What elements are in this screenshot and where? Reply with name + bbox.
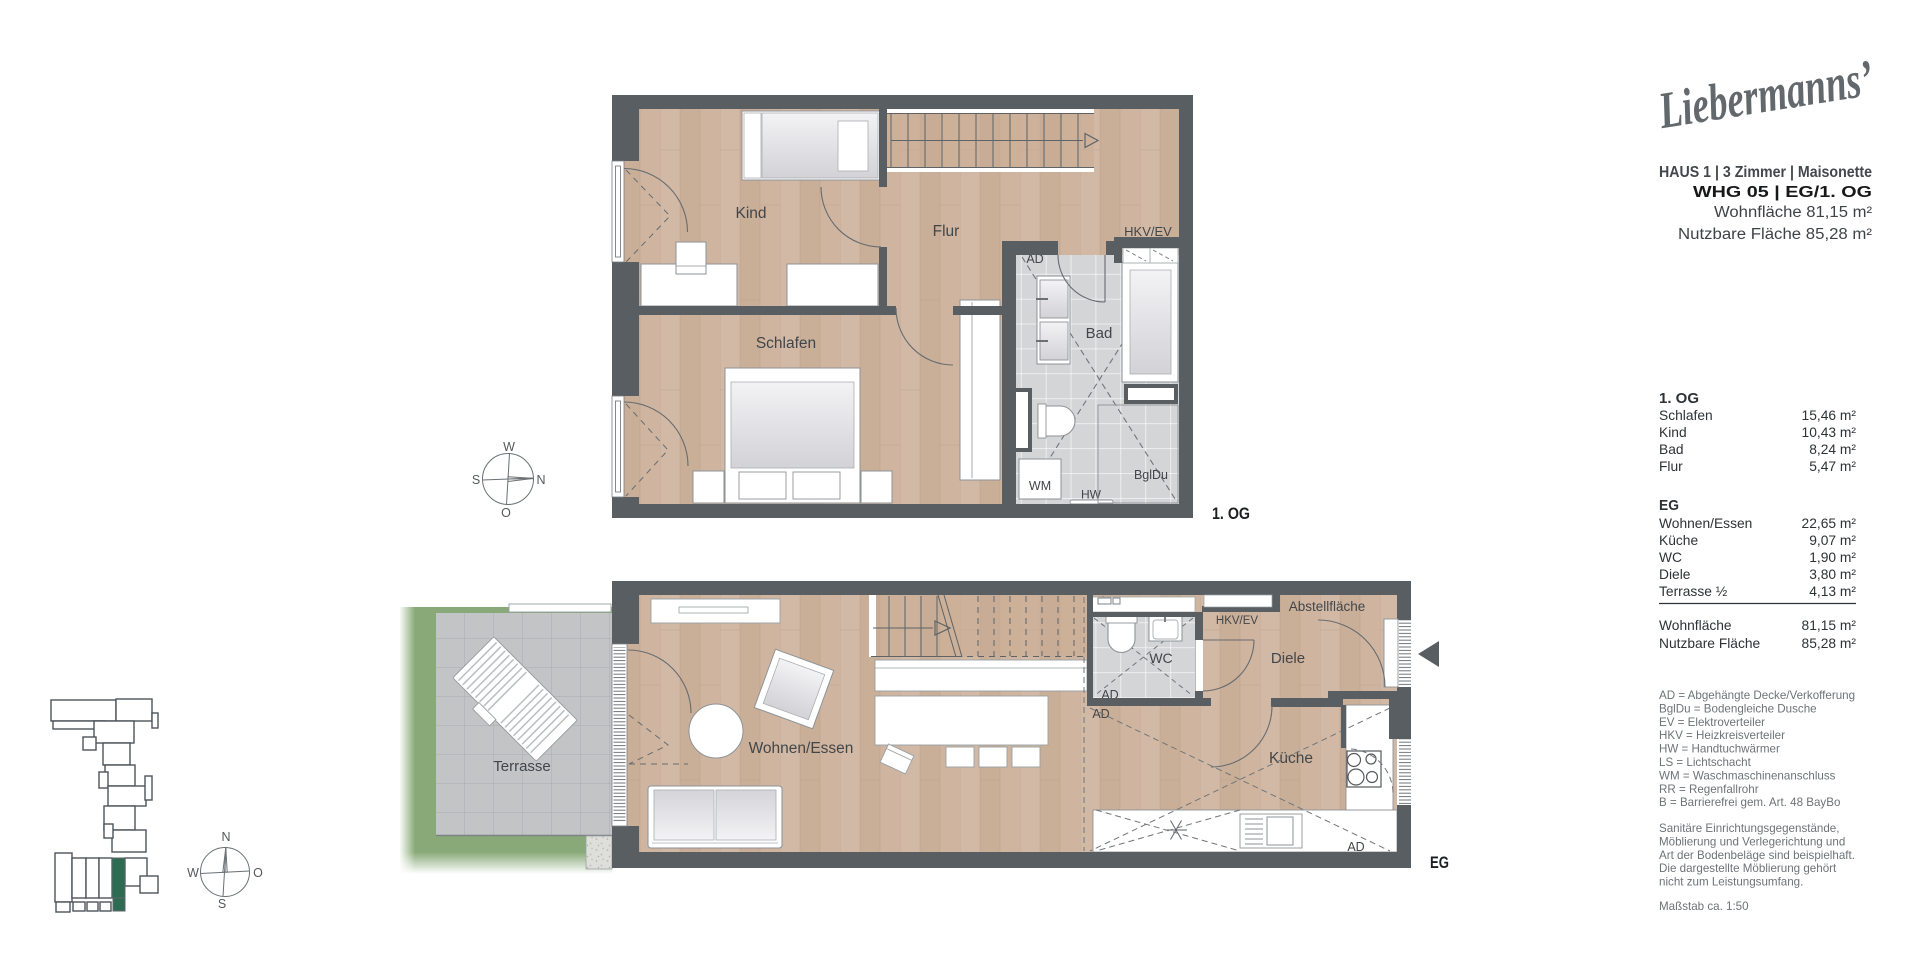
svg-text:Wohnfläche: Wohnfläche xyxy=(1659,618,1732,633)
svg-text:AD: AD xyxy=(1347,840,1364,854)
svg-text:HW: HW xyxy=(1081,488,1102,502)
svg-text:Flur: Flur xyxy=(933,223,960,240)
svg-text:WM = Waschmaschinenanschluss: WM = Waschmaschinenanschluss xyxy=(1659,769,1836,782)
svg-text:N: N xyxy=(221,830,230,844)
svg-text:Nutzbare Fläche: Nutzbare Fläche xyxy=(1659,636,1761,651)
svg-text:3,80 m²: 3,80 m² xyxy=(1809,567,1856,582)
svg-text:Abstellfläche: Abstellfläche xyxy=(1289,599,1366,614)
svg-text:Terrasse ½: Terrasse ½ xyxy=(1659,584,1728,599)
svg-text:Terrasse: Terrasse xyxy=(493,758,551,775)
svg-text:WM: WM xyxy=(1029,479,1051,493)
svg-text:Schlafen: Schlafen xyxy=(1659,408,1713,423)
svg-text:EG: EG xyxy=(1659,497,1679,514)
svg-text:Art der Bodenbeläge sind beisp: Art der Bodenbeläge sind beispielhaft. xyxy=(1659,849,1855,862)
svg-text:B = Barrierefrei gem. Art. 48: B = Barrierefrei gem. Art. 48 BayBo xyxy=(1659,796,1840,809)
svg-text:22,65 m²: 22,65 m² xyxy=(1802,516,1857,531)
svg-text:S: S xyxy=(218,897,226,911)
svg-text:1. OG: 1. OG xyxy=(1659,390,1699,407)
svg-text:AD: AD xyxy=(1092,707,1109,721)
svg-text:W: W xyxy=(503,440,515,454)
svg-text:Wohnfläche 81,15 m²: Wohnfläche 81,15 m² xyxy=(1714,204,1872,221)
svg-text:Wohnen/Essen: Wohnen/Essen xyxy=(749,740,854,757)
svg-text:HKV/EV: HKV/EV xyxy=(1216,615,1259,627)
svg-text:Sanitäre Einrichtungsgegenstän: Sanitäre Einrichtungsgegenstände, xyxy=(1659,822,1839,835)
svg-text:8,24 m²: 8,24 m² xyxy=(1809,442,1856,457)
svg-text:Küche: Küche xyxy=(1269,750,1313,767)
svg-text:HW = Handtuchwärmer: HW = Handtuchwärmer xyxy=(1659,743,1780,756)
svg-text:10,43 m²: 10,43 m² xyxy=(1802,425,1857,440)
svg-text:HKV = Heizkreisverteiler: HKV = Heizkreisverteiler xyxy=(1659,729,1785,742)
svg-text:Diele: Diele xyxy=(1659,567,1691,582)
svg-text:1,90 m²: 1,90 m² xyxy=(1809,550,1856,565)
svg-text:9,07 m²: 9,07 m² xyxy=(1809,533,1856,548)
svg-text:WC: WC xyxy=(1659,550,1682,565)
svg-text:W: W xyxy=(187,866,199,880)
svg-text:Flur: Flur xyxy=(1659,459,1683,474)
svg-text:nicht zum Leistungsumfang.: nicht zum Leistungsumfang. xyxy=(1659,876,1803,889)
svg-text:WHG 05 | EG/1. OG: WHG 05 | EG/1. OG xyxy=(1693,184,1872,201)
svg-text:Kind: Kind xyxy=(735,205,766,222)
svg-text:81,15 m²: 81,15 m² xyxy=(1802,618,1857,633)
svg-text:Diele: Diele xyxy=(1271,650,1305,667)
svg-text:Kind: Kind xyxy=(1659,425,1687,440)
svg-text:Möblierung und Verlegerichtung: Möblierung und Verlegerichtung und xyxy=(1659,835,1845,848)
svg-text:Bad: Bad xyxy=(1086,325,1113,342)
svg-text:1. OG: 1. OG xyxy=(1212,505,1250,523)
svg-text:4,13 m²: 4,13 m² xyxy=(1809,584,1856,599)
svg-text:85,28 m²: 85,28 m² xyxy=(1802,636,1857,651)
svg-text:Bad: Bad xyxy=(1659,442,1684,457)
svg-text:WC: WC xyxy=(1149,650,1172,666)
svg-text:S: S xyxy=(472,473,480,487)
svg-text:HKV/EV: HKV/EV xyxy=(1124,224,1172,239)
svg-text:O: O xyxy=(501,506,511,520)
svg-text:Küche: Küche xyxy=(1659,533,1698,548)
svg-text:5,47 m²: 5,47 m² xyxy=(1809,459,1856,474)
svg-text:EV = Elektroverteiler: EV = Elektroverteiler xyxy=(1659,716,1765,729)
svg-text:LS = Lichtschacht: LS = Lichtschacht xyxy=(1659,756,1752,769)
svg-text:N: N xyxy=(536,473,545,487)
svg-text:HAUS 1 | 3 Zimmer | Maisonette: HAUS 1 | 3 Zimmer | Maisonette xyxy=(1659,164,1872,181)
svg-text:O: O xyxy=(253,866,263,880)
svg-text:Die dargestellte Möblierung ge: Die dargestellte Möblierung gehört xyxy=(1659,862,1837,875)
svg-text:Nutzbare Fläche 85,28 m²: Nutzbare Fläche 85,28 m² xyxy=(1678,226,1872,243)
svg-text:BglDu = Bodengleiche Dusche: BglDu = Bodengleiche Dusche xyxy=(1659,702,1817,715)
svg-text:15,46 m²: 15,46 m² xyxy=(1802,408,1857,423)
svg-text:BglDu: BglDu xyxy=(1134,468,1168,482)
svg-text:AD = Abgehängte Decke/Verkoffe: AD = Abgehängte Decke/Verkofferung xyxy=(1659,689,1855,702)
svg-text:Wohnen/Essen: Wohnen/Essen xyxy=(1659,516,1752,531)
svg-text:RR = Regenfallrohr: RR = Regenfallrohr xyxy=(1659,783,1759,796)
svg-text:Maßstab ca. 1:50: Maßstab ca. 1:50 xyxy=(1659,900,1749,913)
svg-text:Schlafen: Schlafen xyxy=(756,335,816,352)
svg-text:EG: EG xyxy=(1430,854,1449,872)
